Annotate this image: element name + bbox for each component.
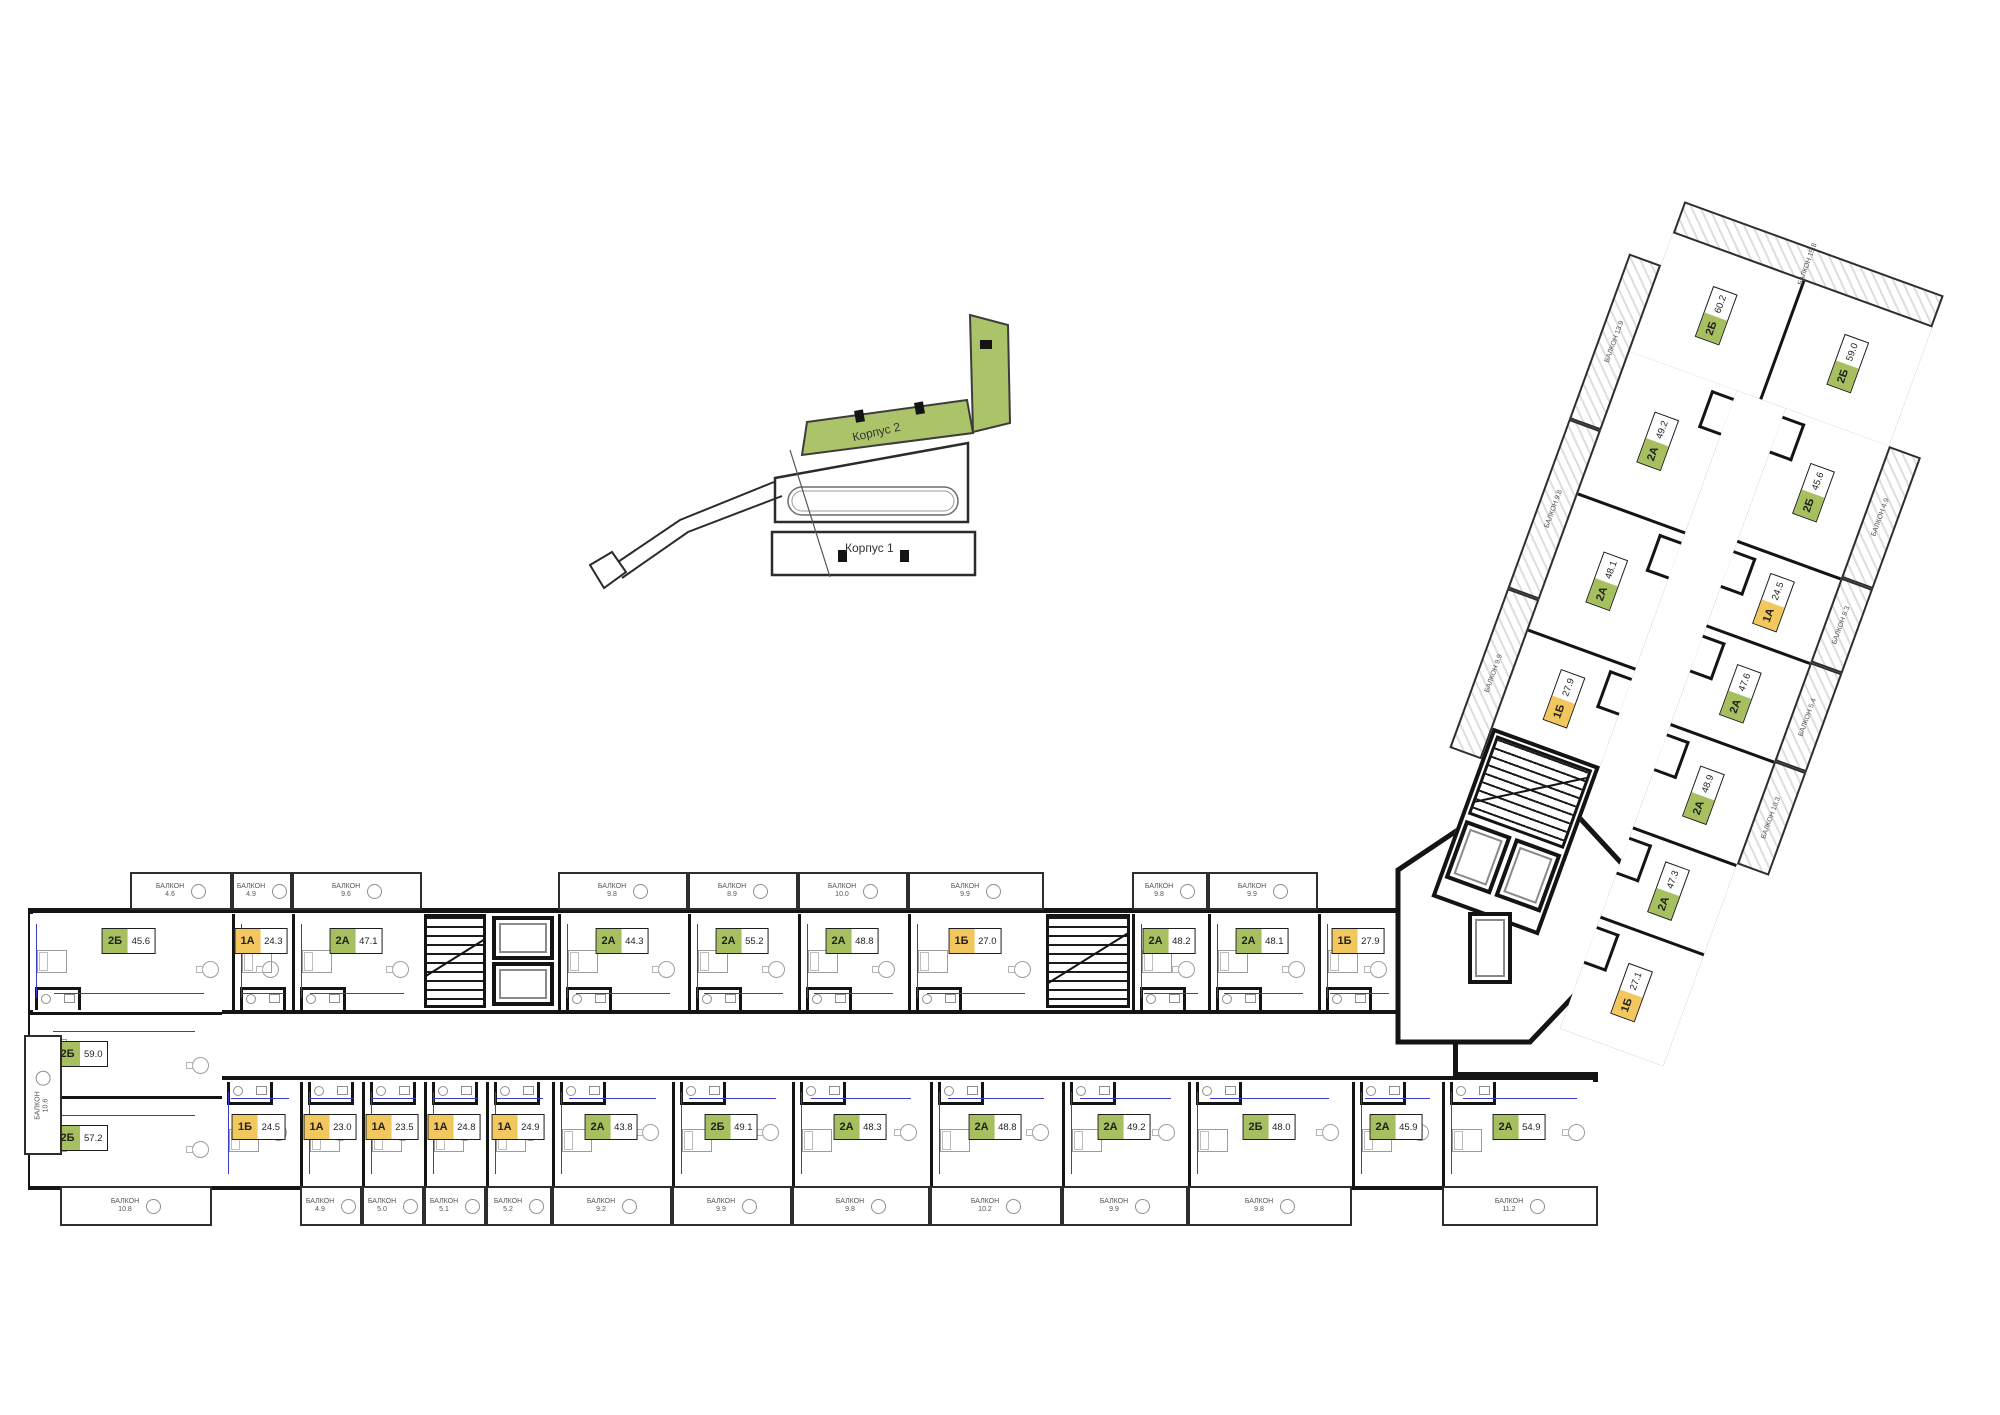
unit-area-value: 48.8 <box>994 1115 1021 1139</box>
unit-badge[interactable]: 2А49.2 <box>1097 1114 1151 1140</box>
balcony-label: БАЛКОН11.2 <box>1495 1198 1523 1214</box>
sink-icon <box>1389 1086 1400 1095</box>
wing-building: БАЛКОН 15.8БАЛКОН 13.9БАЛКОН 9.8БАЛКОН 9… <box>1372 190 1972 1077</box>
unit-cell-2А-47.1[interactable]: 2А47.1 <box>292 914 422 1010</box>
balcony-top: БАЛКОН10.0 <box>798 872 908 910</box>
balcony-word: БАЛКОН <box>1145 883 1173 891</box>
dimension-line <box>681 1092 682 1173</box>
toilet-icon <box>922 994 932 1004</box>
table-icon <box>1322 1124 1339 1141</box>
dimension-line <box>1217 924 1218 999</box>
dimension-line <box>1365 1098 1429 1099</box>
unit-badge[interactable]: 2А49.2 <box>1636 412 1679 471</box>
unit-badge[interactable]: 1Б27.1 <box>1610 963 1653 1022</box>
balcony-word: БАЛКОН <box>951 883 979 891</box>
sink-icon <box>64 994 75 1003</box>
balcony-word: БАЛКОН <box>836 1198 864 1206</box>
balcony-area: 4.9 <box>246 891 256 899</box>
balcony-area: 9.2 <box>596 1206 606 1214</box>
balcony-table-icon <box>1280 1199 1295 1214</box>
table-icon <box>202 961 219 978</box>
unit-area-value: 45.6 <box>128 929 155 953</box>
balcony-left: БАЛКОН10.6 <box>24 1035 62 1155</box>
balcony-label: БАЛКОН10.2 <box>971 1198 999 1214</box>
unit-type-code: 2А <box>585 1115 610 1139</box>
unit-type-code: 1А <box>235 929 260 953</box>
balcony-word: БАЛКОН <box>971 1198 999 1206</box>
table-icon <box>1568 1124 1585 1141</box>
bed-icon <box>1452 1129 1482 1152</box>
table-icon <box>1158 1124 1175 1141</box>
balcony-table-icon <box>1180 884 1195 899</box>
balcony-label: БАЛКОН 10.3 <box>1760 796 1783 840</box>
sink-icon <box>269 994 280 1003</box>
unit-type-code: 2А <box>969 1115 994 1139</box>
balcony-label: БАЛКОН9.8 <box>1145 883 1173 899</box>
unit-area-value: 48.1 <box>1261 929 1288 953</box>
table-icon <box>642 1124 659 1141</box>
dimension-line <box>807 924 808 999</box>
dimension-line <box>53 1115 195 1116</box>
toilet-icon <box>376 1086 386 1096</box>
unit-badge[interactable]: 1А24.8 <box>427 1114 481 1140</box>
balcony-area: 9.8 <box>607 891 617 899</box>
unit-badge[interactable]: 2Б45.6 <box>1792 463 1835 522</box>
dimension-line <box>561 1092 562 1173</box>
toilet-icon <box>246 994 256 1004</box>
toilet-icon <box>1332 994 1342 1004</box>
bed-icon <box>302 950 332 973</box>
unit-cell-1Б-24.5[interactable]: 1Б24.5 <box>222 1082 300 1186</box>
bed-icon <box>37 950 67 973</box>
dimension-line <box>697 924 698 999</box>
balcony-word: БАЛКОН <box>430 1198 458 1206</box>
unit-cell-1А-24.3[interactable]: 1А24.3 <box>232 914 292 1010</box>
balcony-word: БАЛКОН <box>306 1198 334 1206</box>
balcony-area: 10.8 <box>118 1206 132 1214</box>
unit-badge[interactable]: 2А54.9 <box>1492 1114 1546 1140</box>
balcony-table-icon <box>146 1199 161 1214</box>
unit-badge[interactable]: 2А48.1 <box>1235 928 1289 954</box>
toilet-icon <box>812 994 822 1004</box>
toilet-icon <box>702 994 712 1004</box>
balcony-area: 11.2 <box>1502 1206 1515 1214</box>
balcony-table-icon <box>986 884 1001 899</box>
unit-badge[interactable]: 1А24.3 <box>234 928 288 954</box>
unit-type-code: 2А <box>1236 929 1261 953</box>
unit-badge[interactable]: 2А43.8 <box>584 1114 638 1140</box>
unit-cell-2А-48.2[interactable]: 2А48.2 <box>1132 914 1208 1010</box>
unit-area-value: 48.8 <box>851 929 878 953</box>
unit-type-code: 2А <box>826 929 851 953</box>
balcony-word: БАЛКОН <box>368 1198 396 1206</box>
unit-type-code: 2А <box>1493 1115 1518 1139</box>
unit-badge[interactable]: 1А23.5 <box>365 1114 419 1140</box>
bathroom-pod <box>1690 635 1726 681</box>
toilet-icon <box>438 1086 448 1096</box>
unit-badge[interactable]: 1Б27.0 <box>948 928 1002 954</box>
unit-type-code: 2А <box>716 929 741 953</box>
unit-badge[interactable]: 1А24.9 <box>491 1114 545 1140</box>
table-icon <box>1178 961 1195 978</box>
balcony-label: БАЛКОН10.6 <box>35 1091 51 1119</box>
dimension-line <box>1144 993 1198 994</box>
sink-icon <box>1099 1086 1110 1095</box>
balcony-label: БАЛКОН 4.9 <box>1870 497 1891 537</box>
unit-badge[interactable]: 1А23.0 <box>303 1114 357 1140</box>
unit-cell-2А-48.3[interactable]: 2А48.3 <box>792 1082 930 1186</box>
unit-badge[interactable]: 2Б49.1 <box>704 1114 758 1140</box>
unit-badge[interactable]: 2А44.3 <box>595 928 649 954</box>
bathroom-pod <box>566 987 612 1010</box>
table-icon <box>262 961 279 978</box>
table-icon <box>192 1057 209 1074</box>
balcony-bottom: БАЛКОН9.8 <box>1188 1186 1352 1226</box>
bathroom-pod <box>300 987 346 1010</box>
bathroom-pod <box>1216 987 1262 1010</box>
sink-icon <box>329 994 340 1003</box>
unit-cell-2А-44.3[interactable]: 2А44.3 <box>558 914 688 1010</box>
sink-icon <box>1355 994 1366 1003</box>
table-icon <box>392 961 409 978</box>
unit-area-value: 43.8 <box>610 1115 637 1139</box>
bathroom-pod <box>1584 926 1620 972</box>
balcony-area: 9.8 <box>1254 1206 1264 1214</box>
sink-icon <box>461 1086 472 1095</box>
balcony-word: БАЛКОН <box>494 1198 522 1206</box>
toilet-icon <box>500 1086 510 1096</box>
balcony-top: БАЛКОН9.9 <box>908 872 1044 910</box>
balcony-table-icon <box>1530 1199 1545 1214</box>
dimension-line <box>689 1098 776 1099</box>
table-icon <box>1032 1124 1049 1141</box>
unit-badge[interactable]: 2А48.8 <box>968 1114 1022 1140</box>
unit-badge[interactable]: 2А47.1 <box>329 928 383 954</box>
table-icon <box>1288 961 1305 978</box>
locator-korpus2-arm[interactable] <box>970 315 1010 432</box>
unit-area-value: 23.0 <box>329 1115 356 1139</box>
balcony-inner: БАЛКОН10.6 <box>35 1070 51 1119</box>
floorplan-page: Корпус 2 Корпус 1 БАЛКОН 15.8БАЛКОН 13.9… <box>0 0 2000 1415</box>
toilet-icon <box>1146 994 1156 1004</box>
unit-badge[interactable]: 2А45.9 <box>1369 1114 1423 1140</box>
toilet-icon <box>306 994 316 1004</box>
balcony-top: БАЛКОН9.9 <box>1208 872 1318 910</box>
balcony-table-icon <box>272 884 287 899</box>
unit-badge[interactable]: 2Б60.2 <box>1695 286 1738 345</box>
bathroom-pod <box>432 1082 478 1105</box>
elevator-west-1[interactable] <box>492 916 554 960</box>
dimension-line <box>927 993 1025 994</box>
unit-badge[interactable]: 2А48.2 <box>1142 928 1196 954</box>
sink-icon <box>1245 994 1256 1003</box>
dimension-line <box>917 924 918 999</box>
balcony-label: БАЛКОН9.8 <box>598 883 626 899</box>
unit-cell-1А-24.9[interactable]: 1А24.9 <box>486 1082 552 1186</box>
unit-area-value: 47.1 <box>355 929 382 953</box>
unit-badge[interactable]: 1А24.5 <box>1752 573 1795 632</box>
unit-area-value: 24.5 <box>258 1115 285 1139</box>
bathroom-pod <box>1326 987 1372 1010</box>
balcony-area: 5.0 <box>377 1206 387 1214</box>
balcony-table-icon <box>341 1199 356 1214</box>
unit-badge[interactable]: 1Б27.9 <box>1543 669 1586 728</box>
balcony-label: БАЛКОН9.6 <box>332 883 360 899</box>
bathroom-pod <box>494 1082 540 1105</box>
balcony-area: 10.2 <box>978 1206 992 1214</box>
bathroom-pod <box>938 1082 984 1105</box>
dimension-line <box>54 993 203 994</box>
balcony-table-icon <box>622 1199 637 1214</box>
bathroom-pod <box>370 1082 416 1105</box>
bathroom-pod <box>1196 1082 1242 1105</box>
unit-area-value: 57.2 <box>80 1126 107 1150</box>
balcony-label: БАЛКОН9.9 <box>1100 1198 1128 1214</box>
dimension-line <box>811 1098 911 1099</box>
balcony-bottom: БАЛКОН5.2 <box>486 1186 552 1226</box>
table-icon <box>878 961 895 978</box>
dimension-line <box>948 1098 1043 1099</box>
dimension-line <box>939 1092 940 1173</box>
unit-badge[interactable]: 2Б59.0 <box>54 1041 108 1067</box>
table-icon <box>900 1124 917 1141</box>
locator-appendix-wall <box>622 496 782 578</box>
dimension-line <box>228 1092 229 1173</box>
balcony-table-icon <box>36 1070 51 1085</box>
balcony-word: БАЛКОН <box>587 1198 615 1206</box>
unit-type-code: 1А <box>366 1115 391 1139</box>
balcony-area: 9.8 <box>845 1206 855 1214</box>
sink-icon <box>725 994 736 1003</box>
sink-icon <box>835 994 846 1003</box>
balcony-label: БАЛКОН9.2 <box>587 1198 615 1214</box>
balcony-bottom: БАЛКОН10.8 <box>60 1186 212 1226</box>
dimension-line <box>1224 993 1303 994</box>
unit-cell-2Б-45.6[interactable]: 2Б45.6 <box>30 914 232 1010</box>
unit-area-value: 48.0 <box>1268 1115 1295 1139</box>
toilet-icon <box>686 1086 696 1096</box>
balcony-area: 4.9 <box>315 1206 325 1214</box>
balcony-area: 8.9 <box>727 891 737 899</box>
unit-area-value: 55.2 <box>741 929 768 953</box>
table-icon <box>762 1124 779 1141</box>
bathroom-pod <box>1450 1082 1496 1105</box>
unit-badge[interactable]: 2А48.3 <box>833 1114 887 1140</box>
unit-area-value: 59.0 <box>80 1042 107 1066</box>
toilet-icon <box>1076 1086 1086 1096</box>
unit-area-value: 48.3 <box>859 1115 886 1139</box>
table-icon <box>192 1141 209 1158</box>
bathroom-pod <box>1616 837 1652 883</box>
dimension-line <box>1210 1098 1329 1099</box>
bed-icon <box>940 1129 970 1152</box>
unit-badge[interactable]: 2А48.1 <box>1585 552 1628 611</box>
balcony-word: БАЛКОН <box>1100 1198 1128 1206</box>
balcony-area: 10.6 <box>43 1099 51 1113</box>
unit-type-code: 1Б <box>949 929 974 953</box>
unit-type-code: 2А <box>1098 1115 1123 1139</box>
unit-badge[interactable]: 2Б57.2 <box>54 1125 108 1151</box>
bathroom-pod <box>806 987 852 1010</box>
sink-icon <box>595 994 606 1003</box>
balcony-label: БАЛКОН5.0 <box>368 1198 396 1214</box>
balcony-word: БАЛКОН <box>1495 1198 1523 1206</box>
unit-area-value: 44.3 <box>621 929 648 953</box>
unit-cell-2А-48.8[interactable]: 2А48.8 <box>930 1082 1062 1186</box>
unit-cell-2А-48.1[interactable]: 2А48.1 <box>1208 914 1318 1010</box>
balcony-table-icon <box>753 884 768 899</box>
bathroom-pod <box>916 987 962 1010</box>
sink-icon <box>1479 1086 1490 1095</box>
unit-type-code: 2А <box>596 929 621 953</box>
bathroom-pod <box>696 987 742 1010</box>
sink-icon <box>589 1086 600 1095</box>
sink-icon <box>1169 994 1180 1003</box>
unit-badge[interactable]: 2А47.6 <box>1719 664 1762 723</box>
dimension-line <box>1451 1092 1452 1173</box>
balcony-area: 4.6 <box>165 891 175 899</box>
balcony-area: 9.9 <box>960 891 970 899</box>
unit-area-value: 45.9 <box>1395 1115 1422 1139</box>
balcony-label: БАЛКОН5.1 <box>430 1198 458 1214</box>
balcony-label: БАЛКОН9.8 <box>1245 1198 1273 1214</box>
toilet-icon <box>944 1086 954 1096</box>
unit-badge[interactable]: 2А55.2 <box>715 928 769 954</box>
bathroom-pod <box>308 1082 354 1105</box>
unit-cell-2А-49.2[interactable]: 2А49.2 <box>1062 1082 1188 1186</box>
unit-type-code: 2Б <box>1243 1115 1268 1139</box>
balcony-bottom: БАЛКОН9.8 <box>792 1186 930 1226</box>
balcony-bottom: БАЛКОН5.1 <box>424 1186 486 1226</box>
dimension-line <box>310 1098 354 1099</box>
sink-icon <box>945 994 956 1003</box>
toilet-icon <box>233 1086 243 1096</box>
unit-type-code: 1А <box>304 1115 329 1139</box>
bathroom-pod <box>1646 534 1682 580</box>
unit-type-code: 1А <box>492 1115 517 1139</box>
balcony-area: 9.9 <box>1247 891 1257 899</box>
balcony-label: БАЛКОН 9.8 <box>1544 489 1565 529</box>
bathroom-pod <box>1720 550 1756 596</box>
balcony-table-icon <box>1273 884 1288 899</box>
balcony-word: БАЛКОН <box>237 883 265 891</box>
balcony-word: БАЛКОН <box>111 1198 139 1206</box>
unit-type-code: 2Б <box>705 1115 730 1139</box>
unit-area-value: 23.5 <box>391 1115 418 1139</box>
balcony-top: БАЛКОН8.9 <box>688 872 798 910</box>
balcony-area: 9.9 <box>1109 1206 1119 1214</box>
dimension-line <box>1327 924 1328 999</box>
locator-korpus1-label[interactable]: Корпус 1 <box>845 541 894 555</box>
unit-cell-1А-23.5[interactable]: 1А23.5 <box>362 1082 424 1186</box>
unit-cell-2А-45.9[interactable]: 2А45.9 <box>1352 1082 1442 1186</box>
stair-core-west[interactable] <box>424 914 486 1008</box>
dimension-line <box>704 993 783 994</box>
dimension-line <box>1197 1092 1198 1173</box>
dimension-line <box>434 1098 478 1099</box>
unit-type-code: 2Б <box>103 929 128 953</box>
elevator-west-2[interactable] <box>492 962 554 1006</box>
unit-cell-2Б-48.0[interactable]: 2Б48.0 <box>1188 1082 1352 1186</box>
bathroom-pod <box>227 1082 273 1105</box>
balcony-label: БАЛКОН8.9 <box>718 883 746 899</box>
balcony-table-icon <box>742 1199 757 1214</box>
corridor-wall-bottom <box>222 1076 1598 1080</box>
balcony-bottom: БАЛКОН9.9 <box>672 1186 792 1226</box>
balcony-table-icon <box>863 884 878 899</box>
unit-cell-2А-55.2[interactable]: 2А55.2 <box>688 914 798 1010</box>
toilet-icon <box>566 1086 576 1096</box>
unit-cell-2А-54.9[interactable]: 2А54.9 <box>1442 1082 1598 1186</box>
unit-area-value: 49.1 <box>730 1115 757 1139</box>
sink-icon <box>1225 1086 1236 1095</box>
bathroom-pod <box>35 987 81 1010</box>
stair-core-east[interactable] <box>1046 914 1130 1008</box>
balcony-table-icon <box>465 1199 480 1214</box>
dimension-line <box>231 1098 289 1099</box>
balcony-bottom: БАЛКОН9.2 <box>552 1186 672 1226</box>
balcony-table-icon <box>871 1199 886 1214</box>
toilet-icon <box>314 1086 324 1096</box>
balcony-area: 5.2 <box>503 1206 513 1214</box>
dimension-line <box>1080 1098 1171 1099</box>
balcony-area: 9.6 <box>341 891 351 899</box>
balcony-bottom: БАЛКОН10.2 <box>930 1186 1062 1226</box>
locator-appendix-wall <box>612 482 774 566</box>
toilet-icon <box>1222 994 1232 1004</box>
balcony-label: БАЛКОН 15.8 <box>1797 242 1820 286</box>
balcony-word: БАЛКОН <box>1238 883 1266 891</box>
unit-badge[interactable]: 2А47.3 <box>1647 862 1690 921</box>
balcony-word: БАЛКОН <box>1245 1198 1273 1206</box>
toilet-icon <box>572 994 582 1004</box>
unit-badge[interactable]: 2Б59.0 <box>1826 334 1869 393</box>
dimension-line <box>310 993 404 994</box>
unit-badge[interactable]: 2А48.8 <box>825 928 879 954</box>
balcony-word: БАЛКОН <box>718 883 746 891</box>
unit-badge[interactable]: 2А48.9 <box>1682 765 1725 824</box>
unit-area-value: 24.8 <box>453 1115 480 1139</box>
balcony-area: 9.8 <box>1154 891 1164 899</box>
unit-cell-2А-48.8[interactable]: 2А48.8 <box>798 914 908 1010</box>
balcony-label: БАЛКОН 9.9 <box>1484 654 1505 694</box>
bathroom-pod <box>1596 670 1632 716</box>
dimension-line <box>569 1098 656 1099</box>
site-locator-map <box>560 220 1030 600</box>
unit-badge[interactable]: 2Б48.0 <box>1242 1114 1296 1140</box>
unit-badge[interactable]: 1Б24.5 <box>232 1114 286 1140</box>
bed-icon <box>1198 1129 1228 1152</box>
locator-appendix-end <box>590 552 626 588</box>
dimension-line <box>301 924 302 999</box>
elevator-junction[interactable] <box>1468 912 1512 984</box>
balcony-top: БАЛКОН9.6 <box>292 872 422 910</box>
balcony-top: БАЛКОН9.8 <box>558 872 688 910</box>
unit-cell-1А-24.8[interactable]: 1А24.8 <box>424 1082 486 1186</box>
bed-icon <box>568 950 598 973</box>
unit-cell-1Б-27.0[interactable]: 1Б27.0 <box>908 914 1044 1010</box>
balcony-table-icon <box>191 884 206 899</box>
balcony-table-icon <box>529 1199 544 1214</box>
balcony-table-icon <box>1006 1199 1021 1214</box>
unit-badge[interactable]: 2Б45.6 <box>102 928 156 954</box>
corridor-wall-top <box>222 1010 1453 1014</box>
unit-cell-2Б-49.1[interactable]: 2Б49.1 <box>672 1082 792 1186</box>
dimension-line <box>1361 1092 1362 1173</box>
balcony-table-icon <box>367 884 382 899</box>
unit-cell-1А-23.0[interactable]: 1А23.0 <box>300 1082 362 1186</box>
unit-cell-2А-43.8[interactable]: 2А43.8 <box>552 1082 672 1186</box>
